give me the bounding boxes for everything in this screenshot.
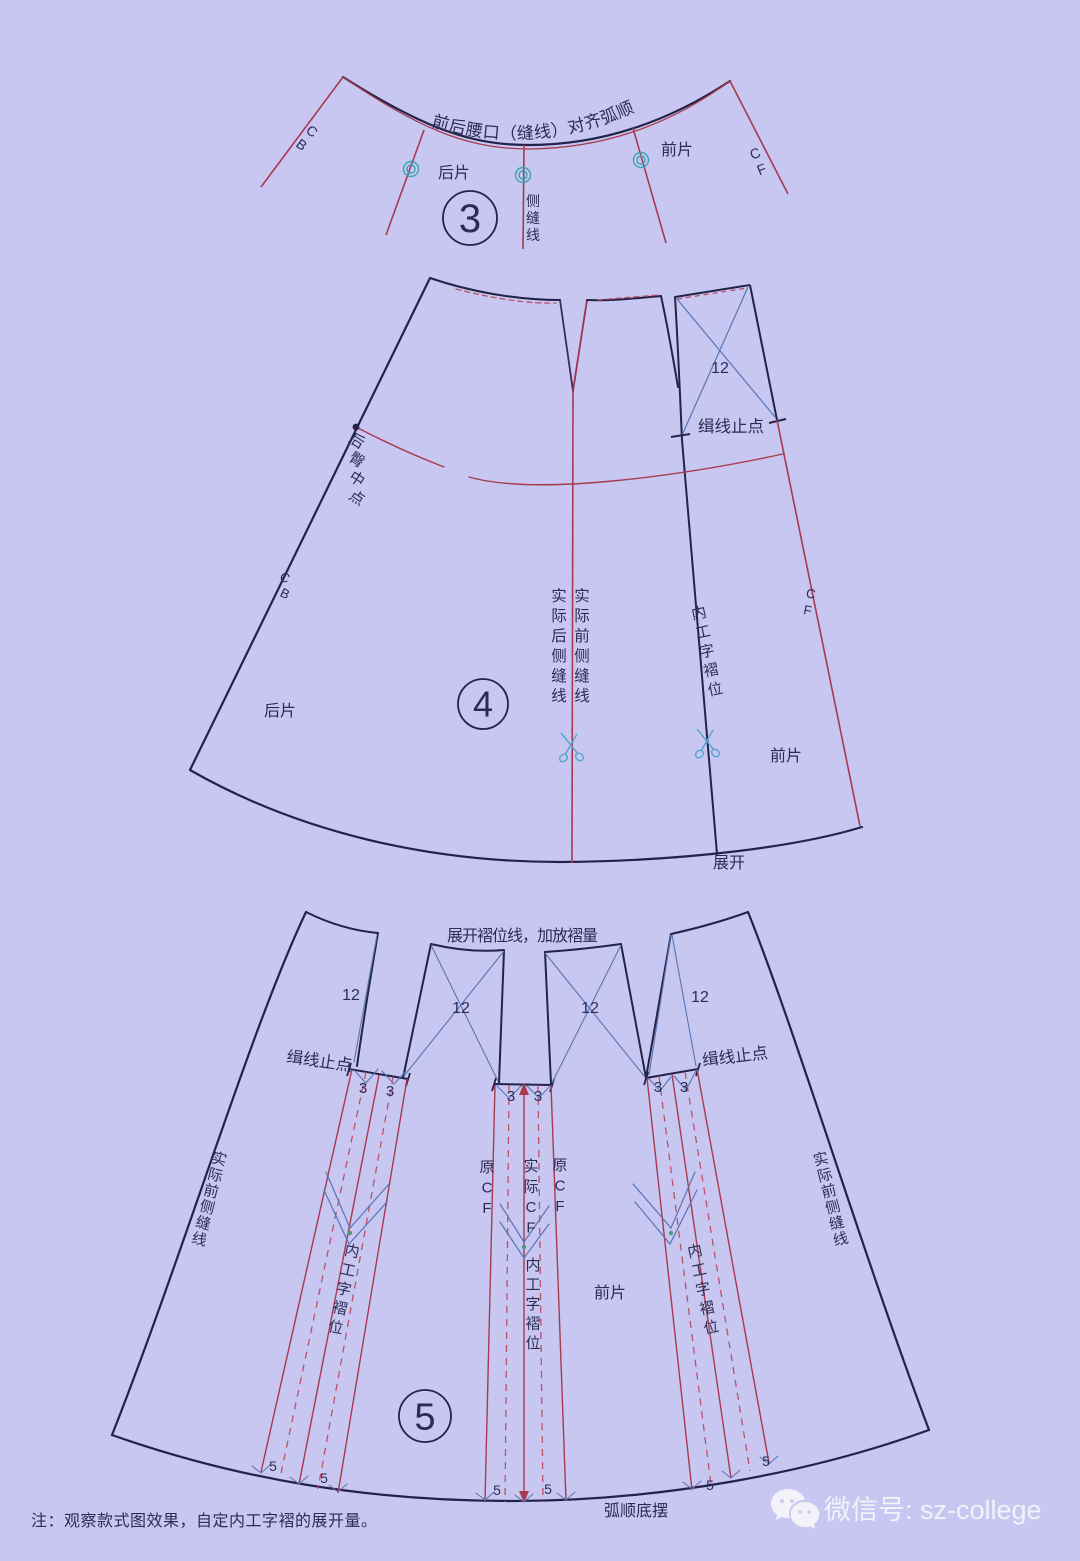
svg-text:5: 5 (706, 1477, 714, 1493)
svg-text:侧: 侧 (526, 193, 540, 209)
svg-text:3: 3 (680, 1079, 688, 1096)
svg-text:3: 3 (534, 1088, 542, 1105)
svg-text:3: 3 (359, 1080, 367, 1097)
svg-text:侧: 侧 (551, 647, 567, 665)
svg-text:线: 线 (526, 227, 540, 243)
svg-text:F: F (555, 1198, 564, 1215)
svg-text:际: 际 (523, 1179, 538, 1196)
svg-text:C: C (555, 1178, 566, 1195)
svg-text:3: 3 (507, 1088, 515, 1105)
svg-text:际: 际 (574, 607, 590, 625)
svg-text:后片: 后片 (264, 702, 296, 720)
svg-text:12: 12 (342, 987, 360, 1004)
svg-text:侧: 侧 (574, 647, 590, 665)
svg-text:3: 3 (654, 1079, 662, 1096)
svg-text:12: 12 (691, 989, 709, 1006)
svg-text:12: 12 (711, 360, 729, 377)
svg-text:原: 原 (479, 1159, 494, 1176)
svg-text:缝: 缝 (526, 210, 540, 226)
svg-text:缝: 缝 (574, 667, 590, 685)
svg-text:展开褶位线，加放褶量: 展开褶位线，加放褶量 (447, 927, 598, 945)
svg-text:12: 12 (581, 1000, 599, 1017)
svg-text:线: 线 (551, 687, 567, 705)
svg-text:展开: 展开 (713, 855, 745, 872)
svg-text:前片: 前片 (594, 1284, 626, 1302)
svg-text:弧顺底摆: 弧顺底摆 (604, 1502, 668, 1520)
svg-text:内: 内 (525, 1257, 540, 1274)
svg-text:工: 工 (525, 1277, 540, 1294)
svg-text:5: 5 (493, 1482, 501, 1498)
svg-text:3: 3 (459, 197, 481, 241)
svg-text:际: 际 (551, 607, 567, 625)
svg-text:C: C (526, 1199, 537, 1216)
svg-text:5: 5 (544, 1481, 552, 1497)
svg-text:褶: 褶 (525, 1316, 540, 1333)
svg-text:实: 实 (523, 1158, 538, 1175)
svg-text:位: 位 (525, 1335, 540, 1352)
svg-text:后片: 后片 (438, 164, 470, 182)
svg-text:12: 12 (452, 1000, 470, 1017)
svg-text:3: 3 (386, 1083, 394, 1100)
svg-text:5: 5 (320, 1470, 328, 1486)
svg-text:5: 5 (414, 1396, 435, 1438)
svg-text:F: F (526, 1220, 535, 1237)
svg-text:F: F (482, 1200, 491, 1217)
svg-text:注：观察款式图效果，自定内工字褶的展开量。: 注：观察款式图效果，自定内工字褶的展开量。 (31, 1512, 378, 1530)
svg-text:缉线止点: 缉线止点 (698, 417, 764, 436)
svg-text:后: 后 (551, 627, 567, 645)
svg-text:前: 前 (574, 627, 590, 645)
svg-text:实: 实 (574, 587, 590, 605)
svg-text:4: 4 (473, 684, 493, 725)
svg-text:字: 字 (525, 1296, 540, 1313)
svg-text:原: 原 (552, 1157, 567, 1174)
svg-text:前片: 前片 (661, 141, 693, 159)
svg-text:线: 线 (574, 687, 590, 705)
svg-text:缝: 缝 (551, 667, 567, 685)
svg-text:5: 5 (762, 1453, 770, 1469)
svg-text:5: 5 (269, 1458, 277, 1474)
svg-text:微信号: sz-college: 微信号: sz-college (824, 1495, 1042, 1525)
svg-text:C: C (482, 1180, 493, 1197)
svg-text:实: 实 (551, 587, 567, 605)
svg-text:前片: 前片 (770, 747, 802, 765)
